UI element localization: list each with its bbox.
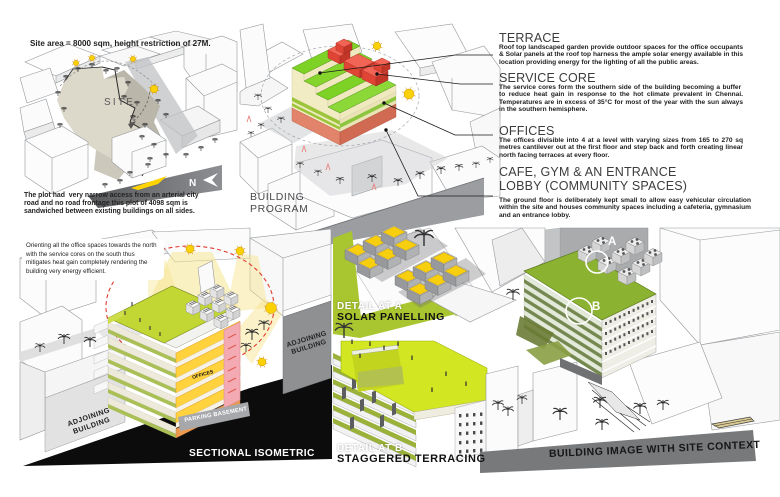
svg-text:N: N	[189, 178, 196, 189]
